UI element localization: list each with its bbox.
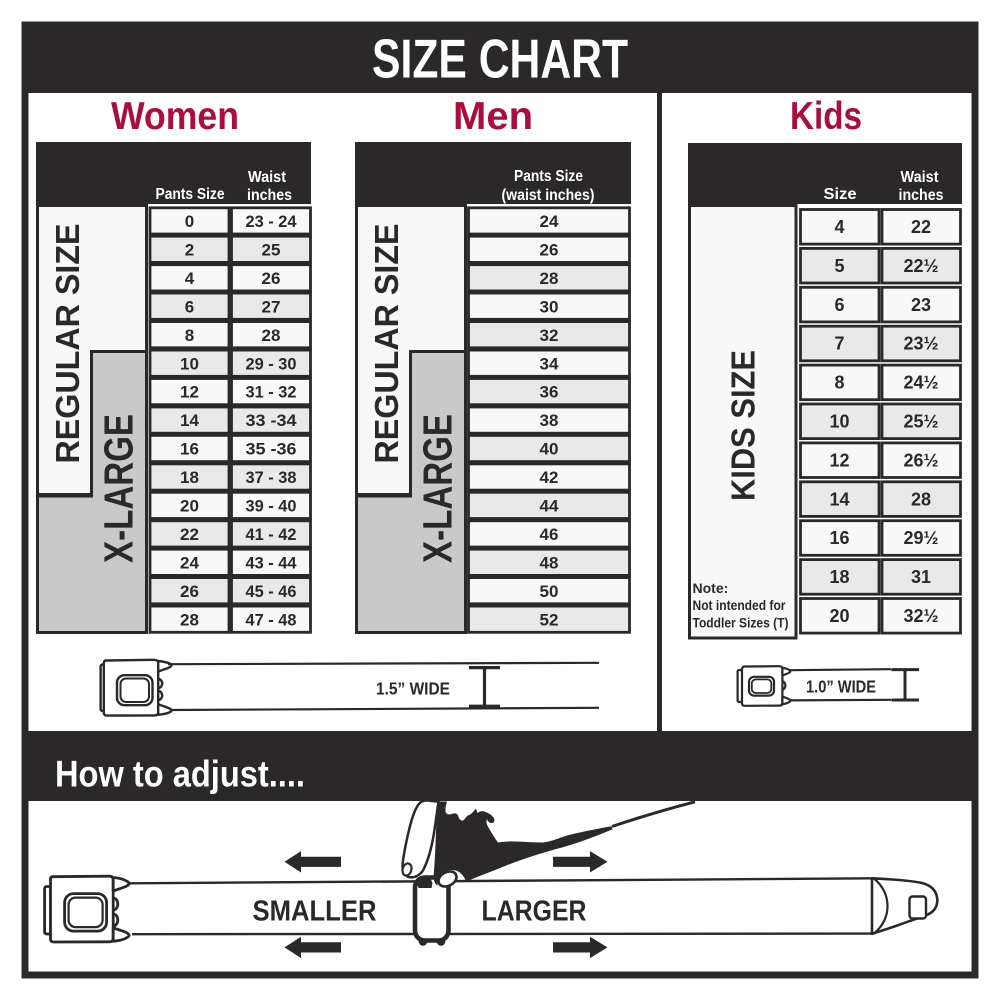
svg-text:10: 10 bbox=[180, 354, 199, 373]
svg-text:29½: 29½ bbox=[903, 528, 938, 548]
svg-text:34: 34 bbox=[540, 354, 559, 373]
svg-text:5: 5 bbox=[834, 256, 844, 276]
svg-text:Size: Size bbox=[824, 186, 857, 203]
svg-text:Note:: Note: bbox=[693, 580, 729, 596]
svg-text:31: 31 bbox=[911, 567, 931, 587]
svg-text:2: 2 bbox=[185, 240, 194, 259]
svg-text:4: 4 bbox=[185, 269, 195, 288]
svg-text:28: 28 bbox=[180, 610, 199, 629]
svg-text:33 -34: 33 -34 bbox=[246, 411, 298, 430]
svg-text:28: 28 bbox=[262, 326, 281, 345]
svg-text:6: 6 bbox=[185, 297, 194, 316]
svg-text:29 - 30: 29 - 30 bbox=[246, 354, 297, 373]
svg-text:18: 18 bbox=[829, 567, 849, 587]
svg-text:38: 38 bbox=[540, 411, 559, 430]
svg-text:25: 25 bbox=[262, 240, 281, 259]
svg-text:Waist: Waist bbox=[901, 169, 940, 186]
svg-text:Toddler Sizes (T): Toddler Sizes (T) bbox=[693, 615, 789, 631]
svg-text:16: 16 bbox=[829, 528, 849, 548]
svg-text:28: 28 bbox=[911, 489, 931, 509]
svg-text:24: 24 bbox=[540, 212, 559, 231]
svg-text:22: 22 bbox=[911, 217, 931, 237]
svg-text:32½: 32½ bbox=[903, 606, 938, 626]
svg-text:36: 36 bbox=[540, 383, 559, 402]
svg-text:22: 22 bbox=[180, 525, 199, 544]
svg-text:X-LARGE: X-LARGE bbox=[415, 414, 461, 563]
svg-text:(waist inches): (waist inches) bbox=[502, 187, 595, 204]
svg-text:22½: 22½ bbox=[903, 256, 938, 276]
svg-text:52: 52 bbox=[540, 610, 559, 629]
svg-text:Not intended for: Not intended for bbox=[693, 597, 786, 613]
svg-text:REGULAR SIZE: REGULAR SIZE bbox=[49, 224, 86, 464]
svg-text:inches: inches bbox=[899, 187, 944, 204]
svg-text:7: 7 bbox=[834, 334, 844, 354]
svg-text:40: 40 bbox=[540, 440, 559, 459]
svg-text:26: 26 bbox=[180, 582, 199, 601]
svg-text:30: 30 bbox=[540, 297, 559, 316]
svg-text:14: 14 bbox=[180, 411, 199, 430]
svg-text:37 - 38: 37 - 38 bbox=[246, 468, 297, 487]
svg-text:23: 23 bbox=[911, 295, 931, 315]
svg-text:0: 0 bbox=[185, 212, 194, 231]
svg-text:24: 24 bbox=[180, 553, 199, 572]
svg-text:14: 14 bbox=[829, 489, 849, 509]
svg-text:KIDS SIZE: KIDS SIZE bbox=[725, 350, 762, 501]
svg-text:32: 32 bbox=[540, 326, 559, 345]
svg-text:4: 4 bbox=[834, 217, 844, 237]
svg-text:43 - 44: 43 - 44 bbox=[246, 553, 298, 572]
svg-text:8: 8 bbox=[834, 373, 844, 393]
svg-text:48: 48 bbox=[540, 553, 559, 572]
svg-text:25½: 25½ bbox=[903, 412, 938, 432]
svg-text:24½: 24½ bbox=[903, 373, 938, 393]
svg-text:Waist: Waist bbox=[248, 169, 287, 186]
svg-text:26: 26 bbox=[540, 240, 559, 259]
svg-text:20: 20 bbox=[829, 606, 849, 626]
svg-text:41 - 42: 41 - 42 bbox=[246, 525, 297, 544]
svg-text:28: 28 bbox=[540, 269, 559, 288]
svg-text:42: 42 bbox=[540, 468, 559, 487]
svg-text:SMALLER: SMALLER bbox=[253, 896, 377, 928]
svg-text:SIZE CHART: SIZE CHART bbox=[372, 28, 628, 90]
svg-text:Men: Men bbox=[453, 95, 533, 138]
svg-text:1.0” WIDE: 1.0” WIDE bbox=[806, 677, 876, 697]
svg-text:12: 12 bbox=[829, 450, 849, 470]
svg-text:inches: inches bbox=[247, 187, 292, 204]
svg-text:How to adjust....: How to adjust.... bbox=[55, 754, 305, 795]
svg-text:26: 26 bbox=[262, 269, 281, 288]
svg-text:46: 46 bbox=[540, 525, 559, 544]
svg-text:23 - 24: 23 - 24 bbox=[246, 212, 298, 231]
svg-text:16: 16 bbox=[180, 440, 199, 459]
svg-text:LARGER: LARGER bbox=[482, 896, 587, 928]
svg-text:8: 8 bbox=[185, 326, 194, 345]
svg-text:Pants Size: Pants Size bbox=[514, 168, 583, 185]
svg-text:1.5” WIDE: 1.5” WIDE bbox=[376, 679, 450, 699]
svg-text:6: 6 bbox=[834, 295, 844, 315]
svg-text:47 - 48: 47 - 48 bbox=[246, 610, 297, 629]
svg-text:26½: 26½ bbox=[903, 450, 938, 470]
svg-text:50: 50 bbox=[540, 582, 559, 601]
svg-text:Pants Size: Pants Size bbox=[156, 186, 225, 203]
svg-text:X-LARGE: X-LARGE bbox=[96, 414, 142, 563]
svg-text:Women: Women bbox=[111, 95, 239, 138]
svg-text:20: 20 bbox=[180, 497, 199, 516]
svg-text:Kids: Kids bbox=[790, 95, 862, 138]
svg-text:12: 12 bbox=[180, 383, 199, 402]
svg-text:31 - 32: 31 - 32 bbox=[246, 383, 297, 402]
svg-text:23½: 23½ bbox=[903, 334, 938, 354]
svg-text:39 - 40: 39 - 40 bbox=[246, 497, 297, 516]
svg-text:10: 10 bbox=[829, 412, 849, 432]
svg-text:27: 27 bbox=[262, 297, 281, 316]
svg-text:18: 18 bbox=[180, 468, 199, 487]
svg-text:35 -36: 35 -36 bbox=[246, 440, 297, 459]
svg-text:REGULAR SIZE: REGULAR SIZE bbox=[368, 224, 405, 464]
svg-text:44: 44 bbox=[540, 497, 559, 516]
svg-text:45 - 46: 45 - 46 bbox=[246, 582, 297, 601]
